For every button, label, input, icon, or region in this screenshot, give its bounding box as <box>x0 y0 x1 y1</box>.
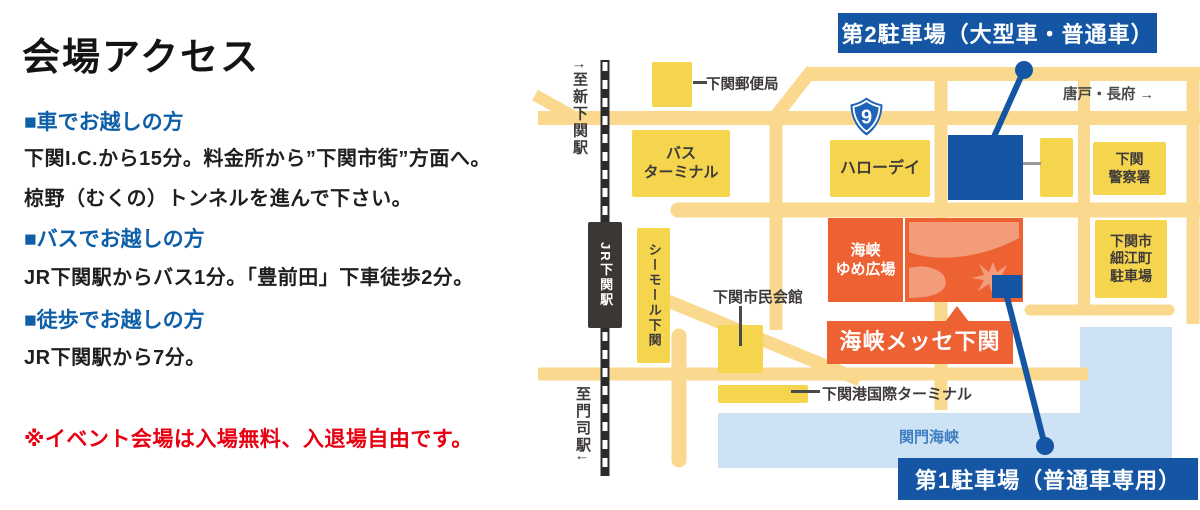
direction-moji: 至門司駅↓ <box>572 386 593 482</box>
hosoe-parking-building: 下関市 細江町 駐車場 <box>1095 220 1167 298</box>
by-car-line-1: 下関I.C.から15分。料金所から”下関市街”方面へ。 <box>24 142 491 171</box>
citizens-hall-label: 下関市民会館 <box>713 286 803 307</box>
messe-callout: 海峡メッセ下関 <box>827 321 1013 364</box>
heading-on-foot: ■徒歩でお越しの方 <box>24 304 205 334</box>
kanmon-strait-label: 関門海峡 <box>899 426 959 447</box>
jr-station-label: JR下関駅 <box>597 242 613 308</box>
bus-terminal-label: バス ターミナル <box>643 145 718 183</box>
jr-station-building: JR下関駅 <box>588 222 622 328</box>
on-foot-line-1: JR下関駅から7分。 <box>24 341 206 370</box>
parking2-connector-line <box>993 70 1024 139</box>
unlabeled-building <box>1040 138 1073 197</box>
label-line-post-office <box>693 81 707 84</box>
parking2-connector-dot <box>1015 61 1033 79</box>
seamall-label: シーモール下関 <box>645 243 661 348</box>
label-line-ferry-terminal <box>791 390 820 393</box>
bus-terminal-building: バス ターミナル <box>632 130 730 197</box>
parking1-connector-line <box>1007 297 1045 446</box>
heading-by-car: ■車でお越しの方 <box>24 106 184 136</box>
label-line-parking2 <box>1023 162 1041 165</box>
page: { "left_panel": { "title": "会場アクセス", "se… <box>0 0 1200 510</box>
route-9-shield-icon: 9 <box>849 96 884 137</box>
parking1-lot-marker <box>992 275 1022 298</box>
direction-karato-chofu: 唐戸・長府 → <box>1063 83 1154 104</box>
seamall-building: シーモール下関 <box>637 228 670 363</box>
label-line-citizens-hall <box>739 306 742 346</box>
police-label: 下関 警察署 <box>1109 151 1151 186</box>
heading-by-bus: ■バスでお越しの方 <box>24 223 205 253</box>
parking2-lot-marker <box>948 135 1023 200</box>
page-title: 会場アクセス <box>22 26 260 81</box>
by-bus-line-1: JR下関駅からバス1分。「豊前田」下車徒歩2分。 <box>24 261 474 290</box>
yume-plaza-label: 海峡 ゆめ広場 <box>835 241 895 280</box>
direction-shin-shimonoseki: ↑至新下関駅 <box>569 62 590 174</box>
parking1-connector-dot <box>1036 437 1054 455</box>
post-office-label: 下関郵便局 <box>706 73 779 94</box>
by-car-line-2: 椋野（むくの）トンネルを進んで下さい。 <box>24 182 412 211</box>
helloday-building: ハローデイ <box>830 140 930 197</box>
route-9-number: 9 <box>861 107 872 129</box>
helloday-label: ハローデイ <box>840 159 920 179</box>
ferry-terminal-label: 下関港国際ターミナル <box>822 383 972 404</box>
messe-callout-pointer <box>945 306 969 322</box>
free-admission-note: ※イベント会場は入場無料、入退場自由です。 <box>24 423 473 453</box>
ferry-terminal-building <box>718 385 808 403</box>
police-station-building: 下関 警察署 <box>1093 142 1166 195</box>
yume-plaza-building: 海峡 ゆめ広場 <box>828 218 903 302</box>
hosoe-parking-label: 下関市 細江町 駐車場 <box>1110 233 1152 286</box>
post-office-building <box>652 62 692 107</box>
parking1-badge: 第1駐車場（普通車専用） <box>898 458 1198 500</box>
parking2-badge: 第2駐車場（大型車・普通車） <box>838 13 1157 53</box>
